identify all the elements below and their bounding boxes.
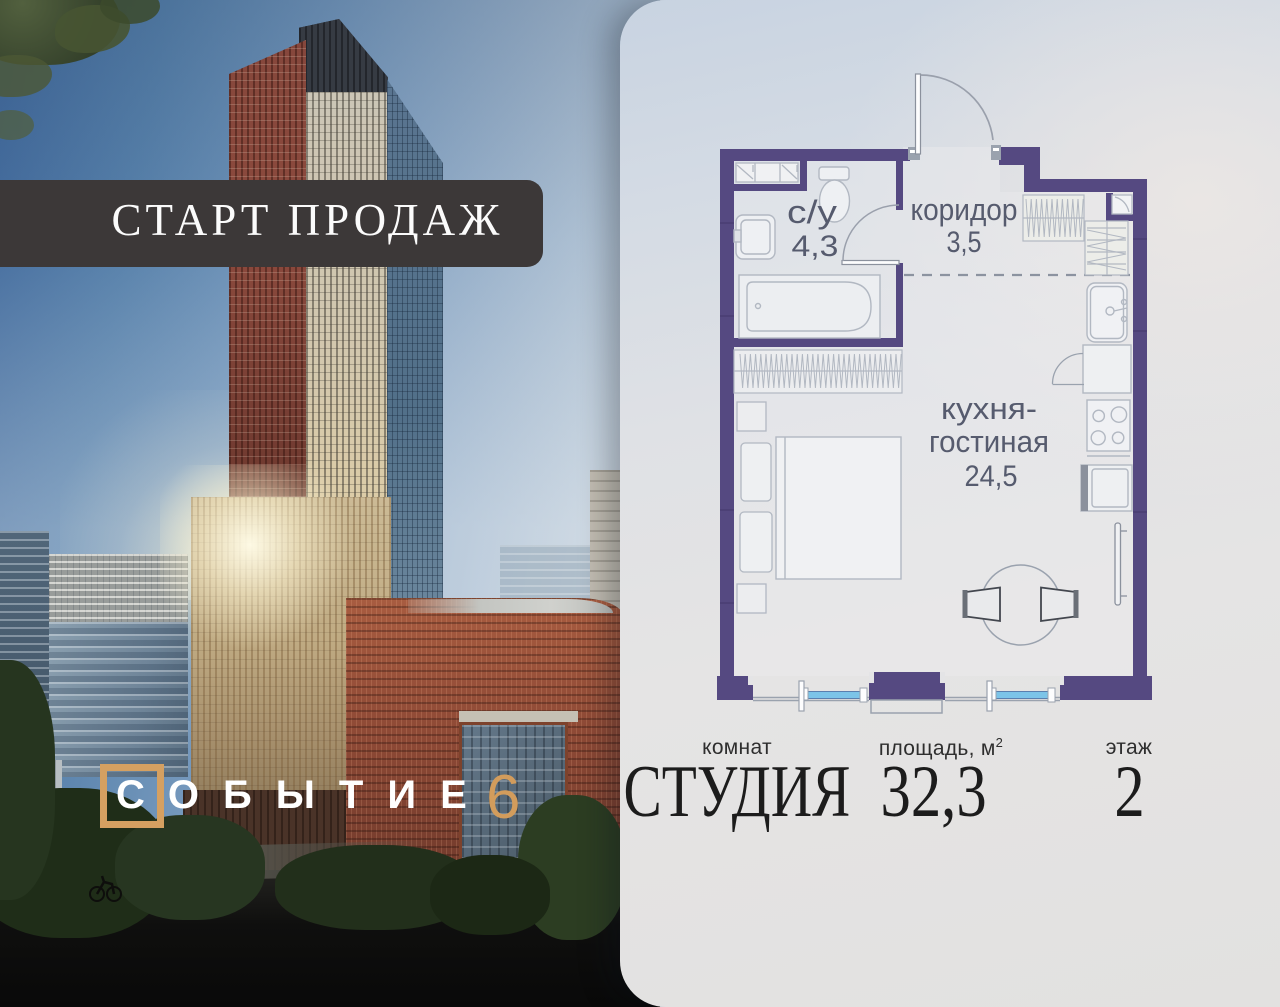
svg-text:24,5: 24,5 [965,460,1018,493]
svg-text:гостиная: гостиная [929,424,1049,459]
svg-text:с/у: с/у [787,194,837,230]
svg-text:4,3: 4,3 [792,230,839,263]
svg-text:3,5: 3,5 [947,226,982,259]
svg-text:кухня-: кухня- [941,391,1037,426]
svg-text:коридор: коридор [911,192,1018,227]
